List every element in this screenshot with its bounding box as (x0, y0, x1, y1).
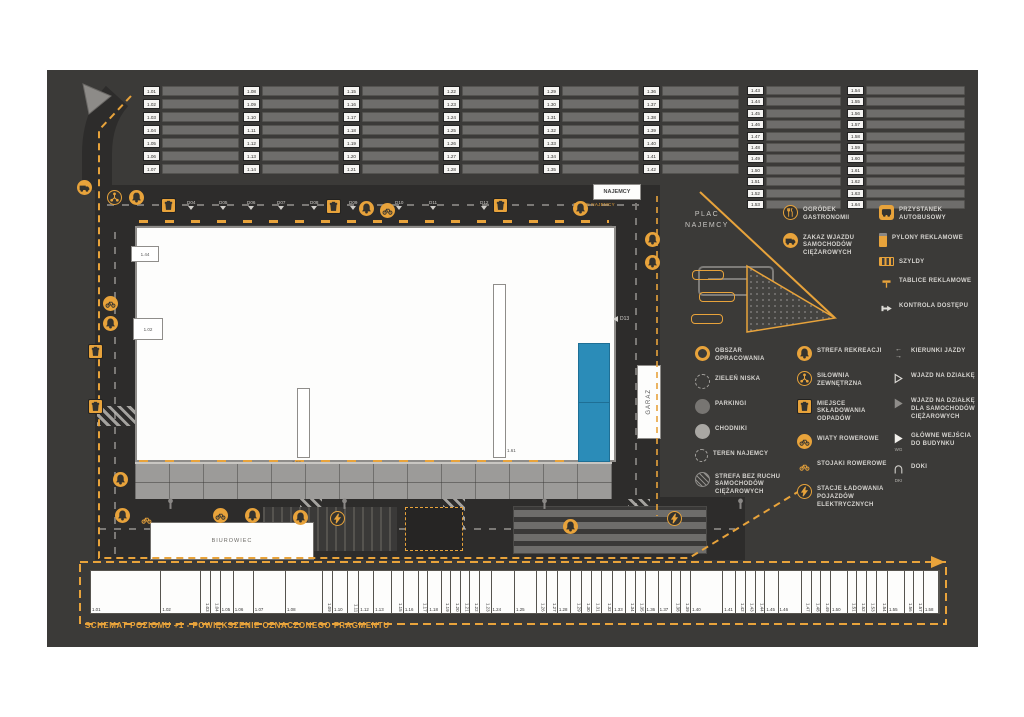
parking-unit-label: 1.35 (543, 164, 560, 174)
legend-item-doki: DKIDOKI (891, 462, 977, 483)
parking-unit-label: 1.41 (643, 151, 660, 161)
access-icon (879, 301, 894, 316)
parking-bar (162, 86, 239, 96)
parking-row: 1.24 (443, 112, 539, 122)
plan-bike-small (139, 512, 154, 530)
parking-bar (866, 154, 965, 163)
parking-bar (362, 164, 439, 174)
parking-unit-label: 1.04 (143, 125, 160, 135)
plan-bell-circle (245, 508, 260, 526)
strip-unit-label: 1.37 (660, 607, 669, 612)
garage-building: GARAŻ (637, 365, 661, 439)
strip-unit-label: 1.40 (692, 607, 701, 612)
parking-unit-label: 1.20 (343, 151, 360, 161)
parking-unit-label: 1.55 (847, 97, 864, 106)
parking-row: 1.50 (747, 166, 841, 175)
parking-unit-label: 1.03 (143, 112, 160, 122)
bell-circle-icon (645, 255, 660, 270)
legend-icon-wrap (695, 449, 708, 462)
parking-bar (662, 99, 739, 109)
dock-label: D05 (219, 200, 227, 205)
parking-bar (766, 189, 841, 198)
unit-label: 1.44 (141, 252, 150, 257)
parking-unit-label: 1.09 (243, 99, 260, 109)
parking-row: 1.20 (343, 151, 439, 161)
parking-unit-label: 1.37 (643, 99, 660, 109)
parking-group-2: 1.081.091.101.111.121.131.14 (243, 86, 339, 177)
parking-unit-label: 1.50 (747, 166, 764, 175)
parking-bar (562, 99, 639, 109)
strip-unit-label: 1.16 (405, 607, 414, 612)
parking-row: 1.38 (643, 112, 739, 122)
dock-triangle-icon (248, 206, 254, 210)
trash-square-icon (326, 199, 341, 214)
legend-item-strefa-rekreacji: STREFA REKREACJI (797, 346, 887, 361)
parking-unit-label: 1.27 (443, 151, 460, 161)
strip-unit-label: 1.18 (429, 607, 438, 612)
strip-unit-1-03: 1.03 (201, 571, 211, 613)
plan-bell-circle (113, 472, 128, 490)
strip-unit-label: 1.19 (445, 603, 450, 612)
legend-label: MIEJSCE SKŁADOWANIA ODPADÓW (817, 399, 887, 424)
strip-unit-label: 1.41 (724, 607, 733, 612)
legend-icon-wrap (879, 233, 887, 247)
parking-group-4: 1.221.231.241.251.261.271.28 (443, 86, 539, 177)
plan-title: SCHEMAT POZIOMU +1 - POWIĘKSZENIE OZNACZ… (85, 621, 389, 630)
legend-icon-wrap (695, 399, 710, 414)
legend-tag: DKI (895, 478, 903, 483)
legend-icon-wrap (797, 434, 812, 449)
parking-bar (866, 143, 965, 152)
gym-circle-icon (797, 371, 812, 386)
strip-unit-label: 1.24 (493, 607, 502, 612)
strip-unit-1-44: 1.44 (756, 571, 766, 613)
plan-bell-circle (573, 201, 588, 219)
parking-bar (362, 125, 439, 135)
adboard-icon (879, 276, 894, 291)
parking-row: 1.58 (847, 132, 965, 141)
strip-unit-1-04: 1.04 (211, 571, 221, 613)
strip-unit-label: 1.34 (630, 603, 635, 612)
bus-badge-icon (879, 205, 894, 220)
strip-unit-1-06: 1.06 (234, 571, 254, 613)
parking-row: 1.04 (143, 125, 239, 135)
dock-marker-d12: D12 (480, 200, 488, 210)
garage-label: GARAŻ (646, 389, 652, 415)
building-core (297, 388, 310, 458)
dock-marker-d07: D07 (277, 200, 285, 210)
parking-bar (262, 164, 339, 174)
legend-item-ziele-niska: ZIELEŃ NISKA (695, 374, 793, 389)
signboard-icon (879, 257, 894, 266)
strip-unit-label: 1.32 (607, 603, 612, 612)
strip-unit-1-37: 1.37 (659, 571, 672, 613)
strip-unit-1-43: 1.43 (746, 571, 756, 613)
legend-icon-wrap (797, 459, 812, 474)
legend-icon-wrap (797, 399, 812, 414)
parking-row: 1.16 (343, 99, 439, 109)
strip-unit-label: 1.02 (162, 607, 171, 612)
dock-marker-d05: D05 (219, 200, 227, 210)
parking-unit-label: 1.13 (243, 151, 260, 161)
parking-unit-label: 1.59 (847, 143, 864, 152)
parking-row: 1.11 (243, 125, 339, 135)
legend-label: PYLONY REKLAMOWE (892, 233, 963, 243)
trash-square-icon (161, 198, 176, 213)
bike-circle-icon (380, 203, 395, 218)
strip-unit-label: 1.49 (825, 603, 830, 612)
parking-unit-label: 1.61 (847, 166, 864, 175)
strip-unit-1-08: 1.08 (286, 571, 323, 613)
ring-yellow-icon (695, 346, 710, 361)
strip-unit-label: 1.43 (750, 603, 755, 612)
parking-unit-label: 1.28 (443, 164, 460, 174)
parking-bar (866, 109, 965, 118)
parking-unit-label: 1.22 (443, 86, 460, 96)
legend-main-col1: OBSZAR OPRACOWANIAZIELEŃ NISKAPARKINGICH… (695, 346, 793, 497)
legend-item-stacje-adowania-pojazd-w-elektry: STACJE ŁADOWANIA POJAZDÓW ELEKTRYCZNYCH (797, 484, 887, 509)
dock-triangle-icon (396, 206, 402, 210)
strip-unit-label: 1.12 (360, 607, 369, 612)
legend-label: WIATY ROWEROWE (817, 434, 879, 444)
ev-circle-icon (797, 484, 812, 499)
trash-square-icon (88, 344, 103, 359)
strip-unit-label: 1.04 (215, 603, 220, 612)
parking-unit-label: 1.02 (143, 99, 160, 109)
strip-unit-1-16: 1.16 (404, 571, 419, 613)
strip-unit-label: 1.36 (647, 607, 656, 612)
parking-row: 1.08 (243, 86, 339, 96)
parking-bar (766, 120, 841, 129)
lamp-icon (537, 496, 552, 511)
legend-label: SIŁOWNIA ZEWNĘTRZNA (817, 371, 887, 389)
strip-unit-1-19: 1.19 (442, 571, 452, 613)
parking-bar (866, 132, 965, 141)
strip-unit-1-20: 1.20 (451, 571, 461, 613)
parking-row: 1.05 (143, 138, 239, 148)
parking-unit-label: 1.46 (747, 120, 764, 129)
unit-box: 1.02 (133, 318, 163, 340)
strip-unit-label: 1.09 (327, 603, 332, 612)
legend-item-tablice-reklamowe: TABLICE REKLAMOWE (879, 276, 975, 291)
strip-unit-1-05: 1.05 (221, 571, 234, 613)
strip-unit-label: 1.42 (740, 603, 745, 612)
parking-bar (866, 177, 965, 186)
parking-bar (162, 138, 239, 148)
parking-unit-label: 1.62 (847, 177, 864, 186)
legend-item-wiaty-rowerowe: WIATY ROWEROWE (797, 434, 887, 449)
legend-item-zakaz-wjazdu-samochod-w-ci-arowy: ZAKAZ WJAZDU SAMOCHODÓW CIĘŻAROWYCH (783, 233, 875, 258)
legend-item-kierunki-jazdy: ←→KIERUNKI JAZDY (891, 346, 977, 361)
trash-square-icon (88, 399, 103, 414)
parking-bar (462, 86, 539, 96)
strip-unit-1-10: 1.10 (333, 571, 348, 613)
tenant-square-label: PLAC NAJEMCY (659, 210, 755, 231)
legend-item-ogr-dek-gastronomii: OGRÓDEK GASTRONOMII (783, 205, 875, 223)
strip-unit-label: 1.44 (759, 603, 764, 612)
strip-unit-label: 1.28 (559, 607, 568, 612)
legend-label: TEREN NAJEMCY (713, 449, 768, 459)
bench (691, 314, 723, 324)
strip-unit-label: 1.17 (422, 603, 427, 612)
parking-bar (766, 132, 841, 141)
strip-unit-1-57: 1.57 (914, 571, 924, 613)
unit-label: 1.02 (144, 327, 153, 332)
legend-icon-wrap (891, 396, 906, 411)
parking-row: 1.29 (543, 86, 639, 96)
parking-unit-label: 1.47 (747, 132, 764, 141)
strip-unit-1-34: 1.34 (626, 571, 636, 613)
strip-unit-label: 1.55 (889, 607, 898, 612)
strip-unit-label: 1.22 (474, 603, 479, 612)
parking-unit-label: 1.12 (243, 138, 260, 148)
strip-unit-label: 1.26 (541, 603, 546, 612)
strip-unit-label: 1.06 (235, 607, 244, 612)
legend-item-kontrola-dost-pu: KONTROLA DOSTĘPU (879, 301, 975, 316)
parking-bar (262, 99, 339, 109)
dock-icon (891, 462, 906, 477)
parking-row: 1.14 (243, 164, 339, 174)
bell-circle-icon (115, 508, 130, 523)
strip-unit-1-33: 1.33 (613, 571, 626, 613)
legend-item-wjazd-na-dzia-k-dla-samochod-w-c: WJAZD NA DZIAŁKĘ DLA SAMOCHODÓW CIĘŻAROW… (891, 396, 977, 421)
strip-unit-1-18: 1.18 (428, 571, 441, 613)
strip-unit-1-29: 1.29 (571, 571, 582, 613)
parking-bar (462, 164, 539, 174)
dock-label: D09 (349, 200, 357, 205)
parking-bar (662, 138, 739, 148)
parking-row: 1.32 (543, 125, 639, 135)
strip-unit-1-15: 1.15 (392, 571, 403, 613)
parking-bar (662, 164, 739, 174)
legend-label: TABLICE REKLAMOWE (899, 276, 971, 286)
main-building (135, 226, 616, 462)
strip-unit-label: 1.27 (552, 603, 557, 612)
strip-unit-label: 1.10 (334, 607, 343, 612)
north-arrow-icon (83, 84, 111, 114)
parking-unit-label: 1.60 (847, 154, 864, 163)
parking-bar (462, 112, 539, 122)
parking-bar (162, 164, 239, 174)
strip-unit-1-38: 1.38 (672, 571, 682, 613)
bell-circle-icon (293, 510, 308, 525)
legend-item-parkingi: PARKINGI (695, 399, 793, 414)
parking-bar (766, 166, 841, 175)
parking-row: 1.06 (143, 151, 239, 161)
parking-unit-label: 1.10 (243, 112, 260, 122)
plan-bell-circle (103, 316, 118, 334)
strip-unit-label: 1.20 (455, 603, 460, 612)
parking-bar (362, 138, 439, 148)
parking-row: 1.34 (543, 151, 639, 161)
strip-unit-label: 1.05 (222, 607, 231, 612)
parking-bar (562, 112, 639, 122)
parking-group-7: 1.431.441.451.461.471.481.491.501.511.52… (747, 86, 841, 211)
strip-unit-1-53: 1.53 (867, 571, 877, 613)
plan-canvas: 1.44 1.02 1.62 1.61 BIUROWIEC GARAŻ NAJE… (47, 70, 978, 647)
parking-row: 1.47 (747, 132, 841, 141)
parking-row: 1.28 (443, 164, 539, 174)
tenant-label: NAJEMCY (604, 189, 631, 195)
parking-bar (866, 189, 965, 198)
parking-bar (562, 125, 639, 135)
parking-bar (866, 86, 965, 95)
parking-unit-label: 1.19 (343, 138, 360, 148)
parking-group-6: 1.361.371.381.391.401.411.42 (643, 86, 739, 177)
bike-circle-icon (103, 296, 118, 311)
strip-unit-1-51: 1.51 (848, 571, 858, 613)
parking-unit-label: 1.05 (143, 138, 160, 148)
frame-arrow-icon (931, 556, 945, 568)
legend-main-col3: ←→KIERUNKI JAZDYWJAZD NA DZIAŁKĘWJAZD NA… (891, 346, 977, 483)
legend-item-wjazd-na-dzia-k: WJAZD NA DZIAŁKĘ (891, 371, 977, 386)
strip-unit-1-40: 1.40 (691, 571, 723, 613)
strip-unit-1-41: 1.41 (723, 571, 736, 613)
strip-unit-1-31: 1.31 (592, 571, 602, 613)
parking-row: 1.41 (643, 151, 739, 161)
bike-circle-icon (797, 434, 812, 449)
strip-unit-label: 1.46 (780, 607, 789, 612)
strip-unit-label: 1.01 (92, 607, 101, 612)
legend-icon-wrap (879, 301, 894, 316)
strip-unit-label: 1.45 (766, 607, 775, 612)
legend-label: STOJAKI ROWEROWE (817, 459, 887, 469)
parking-bar (162, 125, 239, 135)
parking-bar (462, 125, 539, 135)
lane-marking (114, 230, 116, 554)
parking-unit-label: 1.43 (747, 86, 764, 95)
dock-marker-d09: D09 (349, 200, 357, 210)
strip-unit-1-23: 1.23 (480, 571, 491, 613)
parking-unit-label: 1.18 (343, 125, 360, 135)
dock-marker-d08: D08 (310, 200, 318, 210)
parking-bar (262, 112, 339, 122)
blue-zone (578, 402, 610, 462)
strip-unit-label: 1.11 (353, 604, 358, 612)
plan-trash-square (493, 198, 508, 216)
parking-bar (162, 112, 239, 122)
plan-lamp (337, 496, 352, 514)
arrows-icon: ←→ (891, 346, 906, 361)
circle-light-icon (695, 424, 710, 439)
plan-bell-circle (129, 190, 144, 208)
parking-row: 1.61 (847, 166, 965, 175)
parking-row: 1.35 (543, 164, 639, 174)
parking-row: 1.09 (243, 99, 339, 109)
parking-row: 1.30 (543, 99, 639, 109)
plan-trash-square (88, 344, 103, 362)
legend-main-col2: STREFA REKREACJISIŁOWNIA ZEWNĘTRZNAMIEJS… (797, 346, 887, 509)
parking-row: 1.37 (643, 99, 739, 109)
strip-unit-label: 1.48 (815, 603, 820, 612)
strip-unit-1-24: 1.24 (492, 571, 516, 613)
legend-item-przystanek-autobusowy: PRZYSTANEK AUTOBUSOWY (879, 205, 975, 223)
parking-row: 1.56 (847, 109, 965, 118)
ring-dash2-icon (695, 449, 708, 462)
legend-label: WJAZD NA DZIAŁKĘ (911, 371, 975, 381)
parking-unit-label: 1.40 (643, 138, 660, 148)
legend-label: ZIELEŃ NISKA (715, 374, 760, 384)
sidewalk-band (135, 462, 612, 499)
strip-unit-1-39: 1.39 (681, 571, 691, 613)
dock-label: D08 (310, 200, 318, 205)
strip-unit-label: 1.25 (516, 607, 525, 612)
parking-unit-label: 1.16 (343, 99, 360, 109)
parking-bar (362, 151, 439, 161)
parking-row: 1.63 (847, 189, 965, 198)
strip-unit-label: 1.53 (871, 603, 876, 612)
legend-label: STREFA REKREACJI (817, 346, 882, 356)
dock-label: D10 (395, 200, 403, 205)
parking-row: 1.57 (847, 120, 965, 129)
dock-triangle-icon (430, 206, 436, 210)
strip-unit-1-56: 1.56 (905, 571, 915, 613)
parking-unit-label: 1.14 (243, 164, 260, 174)
legend-icon-wrap (695, 374, 710, 389)
strip-unit-label: 1.57 (918, 603, 923, 612)
office-building: BIUROWIEC (150, 522, 314, 560)
legend-item-pylony-reklamowe: PYLONY REKLAMOWE (879, 233, 975, 247)
parking-unit-label: 1.57 (847, 120, 864, 129)
bench (699, 292, 735, 302)
strip-unit-label: 1.30 (586, 603, 591, 612)
dock-label: D06 (247, 200, 255, 205)
legend-item-miejsce-sk-adowania-odpad-w: MIEJSCE SKŁADOWANIA ODPADÓW (797, 399, 887, 424)
lamp-icon (163, 496, 178, 511)
legend-icon-wrap (695, 346, 710, 361)
bell-circle-icon (645, 232, 660, 247)
dock-marker-d04: D04 (187, 200, 195, 210)
bike-shelter (405, 507, 463, 551)
parking-bar (866, 166, 965, 175)
parking-bar (562, 86, 639, 96)
plan-bike-circle (103, 296, 118, 314)
entrance-ticks (139, 220, 609, 223)
parking-unit-label: 1.44 (747, 97, 764, 106)
parking-bar (562, 164, 639, 174)
parking-unit-label: 1.31 (543, 112, 560, 122)
legend-icon-wrap (879, 205, 894, 220)
parking-unit-label: 1.49 (747, 154, 764, 163)
parking-row: 1.01 (143, 86, 239, 96)
bench (692, 270, 724, 280)
legend-label: PRZYSTANEK AUTOBUSOWY (899, 205, 975, 223)
parking-row: 1.39 (643, 125, 739, 135)
legend-label: OBSZAR OPRACOWANIA (715, 346, 793, 364)
legend-item-chodniki: CHODNIKI (695, 424, 793, 439)
bike-circle-icon (213, 508, 228, 523)
parking-unit-label: 1.48 (747, 143, 764, 152)
plan-lamp (163, 496, 178, 514)
legend-icon-wrap (695, 472, 710, 487)
parking-bar (562, 138, 639, 148)
parking-bar (766, 177, 841, 186)
bell-circle-icon (563, 519, 578, 534)
plan-bike-circle (213, 508, 228, 526)
plan-bell-circle (115, 508, 130, 526)
parking-bar (766, 109, 841, 118)
legend-icon-wrap: ←→ (891, 346, 906, 361)
legend-icon-wrap (783, 233, 798, 248)
strip-unit-1-32: 1.32 (602, 571, 613, 613)
strip-unit-1-22: 1.22 (470, 571, 480, 613)
bell-circle-icon (113, 472, 128, 487)
plan-trash-square (161, 198, 176, 216)
strip-unit-label: 1.56 (908, 603, 913, 612)
parking-bar (162, 99, 239, 109)
dock-triangle-icon (311, 206, 317, 210)
strip-unit-label: 1.52 (861, 603, 866, 612)
